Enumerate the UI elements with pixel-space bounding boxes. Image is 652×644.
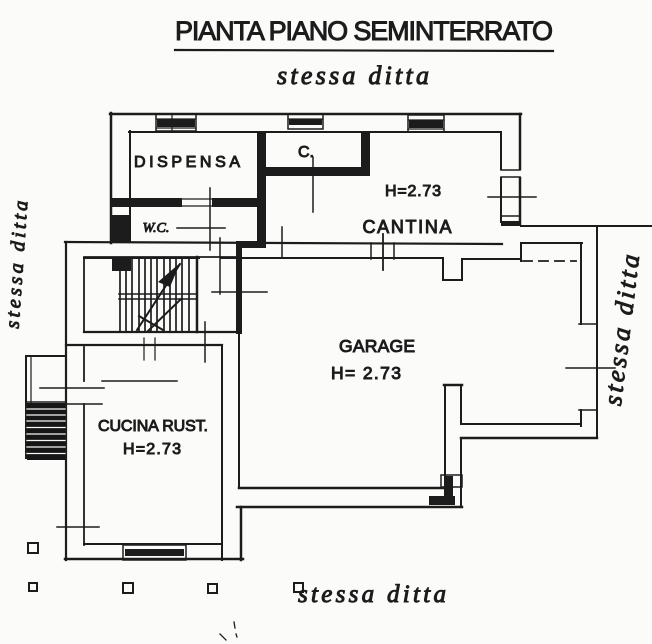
svg-text:H=2.73: H=2.73 (385, 183, 441, 200)
svg-text:H= 2.73: H= 2.73 (331, 363, 401, 383)
svg-text:CUCINA RUST.: CUCINA RUST. (98, 418, 208, 435)
svg-text:C.: C. (298, 144, 314, 161)
svg-text:W.C.: W.C. (143, 221, 170, 236)
svg-text:H=2.73: H=2.73 (123, 441, 181, 458)
svg-text:GARAGE: GARAGE (339, 336, 415, 356)
svg-text:DISPENSA: DISPENSA (134, 154, 240, 171)
svg-text:PIANTA PIANO SEMINTERRATO: PIANTA PIANO SEMINTERRATO (175, 16, 553, 46)
